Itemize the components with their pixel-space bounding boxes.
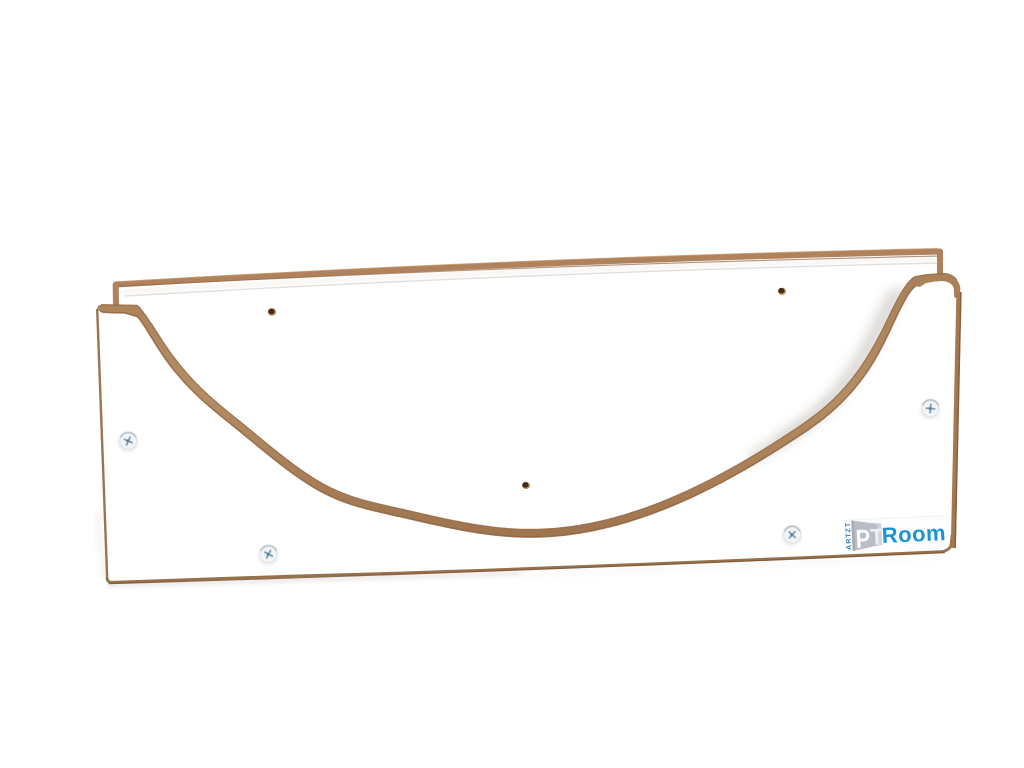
svg-text:P: P (855, 523, 871, 554)
svg-text:Room: Room (881, 520, 946, 548)
